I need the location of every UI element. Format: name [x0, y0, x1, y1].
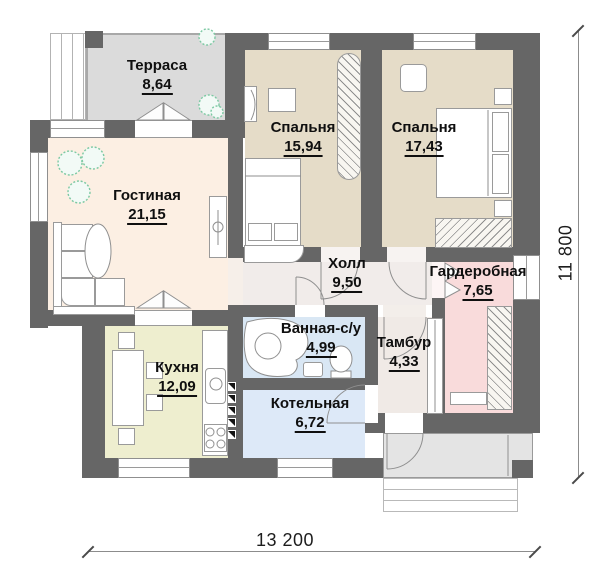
dim-width-label: 13 200: [256, 530, 314, 551]
room-name: Котельная: [271, 394, 350, 413]
room-name: Гостиная: [113, 186, 181, 205]
room-area: 4,99: [305, 339, 336, 358]
label-gostinaya: Гостиная 21,15: [113, 186, 181, 225]
label-kuhnya: Кухня 12,09: [155, 358, 199, 397]
room-area: 17,43: [404, 138, 444, 157]
label-spalnya1: Спальня 15,94: [271, 118, 336, 157]
room-name: Спальня: [271, 118, 336, 137]
room-name: Кухня: [155, 358, 199, 377]
room-name: Тамбур: [377, 333, 431, 352]
label-holl: Холл 9,50: [328, 254, 366, 293]
room-area: 8,64: [141, 76, 172, 95]
room-name: Терраса: [127, 56, 187, 75]
room-area: 21,15: [127, 206, 167, 225]
label-kotelnaya: Котельная 6,72: [271, 394, 350, 433]
dim-height-label: 11 800: [556, 225, 577, 282]
floor-plan: Терраса 8,64 Спальня 15,94 Спальня 17,43…: [0, 0, 600, 587]
room-area: 15,94: [283, 138, 323, 157]
label-terrasa: Терраса 8,64: [127, 56, 187, 95]
room-area: 12,09: [157, 378, 197, 397]
label-garderobnaya: Гардеробная 7,65: [429, 262, 526, 301]
label-spalnya2: Спальня 17,43: [392, 118, 457, 157]
label-tambur: Тамбур 4,33: [377, 333, 431, 372]
label-vannaya: Ванная-с/у 4,99: [281, 319, 361, 358]
room-area: 9,50: [331, 274, 362, 293]
room-name: Спальня: [392, 118, 457, 137]
room-name: Гардеробная: [429, 262, 526, 281]
labels-layer: Терраса 8,64 Спальня 15,94 Спальня 17,43…: [0, 0, 600, 587]
room-name: Ванная-с/у: [281, 319, 361, 338]
room-area: 6,72: [294, 414, 325, 433]
room-name: Холл: [328, 254, 366, 273]
room-area: 4,33: [388, 353, 419, 372]
room-area: 7,65: [462, 282, 493, 301]
